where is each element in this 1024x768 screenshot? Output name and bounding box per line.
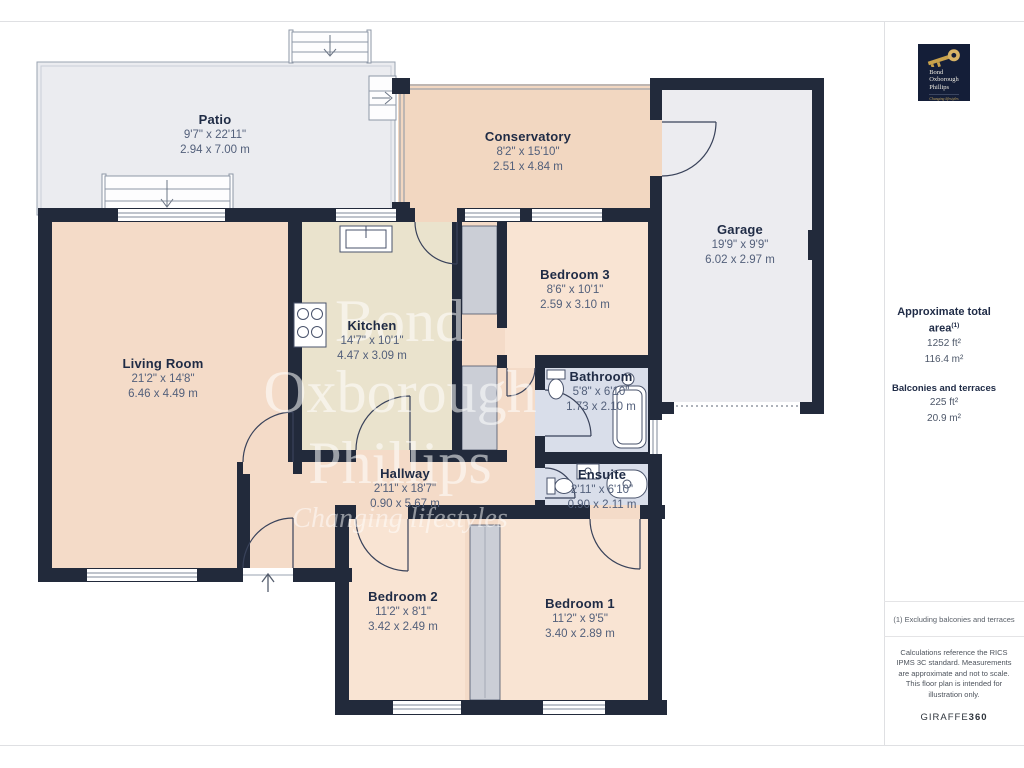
logo-tagline: Changing lifestyles bbox=[929, 94, 958, 101]
footnote-text: (1) Excluding balconies and terraces bbox=[893, 615, 1014, 624]
total-area-heading: Approximate total area(1) bbox=[884, 305, 1004, 336]
bedroom1-floor bbox=[498, 515, 653, 705]
kitchen-hob bbox=[294, 303, 326, 347]
key-icon bbox=[922, 48, 966, 67]
sidebar: Bond Oxborough Phillips Changing lifesty… bbox=[884, 21, 1024, 745]
agency-logo: Bond Oxborough Phillips Changing lifesty… bbox=[918, 44, 970, 101]
ensuite-toilet bbox=[547, 478, 555, 494]
area-summary: Approximate total area(1) 1252 ft² 116.4… bbox=[884, 305, 1004, 427]
balconies-heading: Balconies and terraces bbox=[884, 382, 1004, 395]
disclaimer-text: Calculations reference the RICS IPMS 3C … bbox=[892, 648, 1016, 700]
total-area-m: 116.4 m² bbox=[884, 352, 1004, 368]
bathtub bbox=[613, 386, 646, 448]
conservatory bbox=[392, 78, 652, 218]
balconies-m: 20.9 m² bbox=[884, 411, 1004, 427]
bedroom2-floor bbox=[345, 515, 465, 705]
footnote-marker: (1) bbox=[951, 322, 959, 329]
floorplan-svg bbox=[0, 0, 884, 768]
bedroom3-floor bbox=[505, 220, 650, 360]
bathroom-toilet bbox=[547, 370, 565, 379]
logo-wordmark: Bond Oxborough Phillips bbox=[929, 69, 959, 92]
total-area-ft: 1252 ft² bbox=[884, 336, 1004, 352]
giraffe360-brand: GIRAFFE360 bbox=[884, 712, 1024, 723]
footnote-section: (1) Excluding balconies and terraces bbox=[884, 601, 1024, 637]
balconies-ft: 225 ft² bbox=[884, 395, 1004, 411]
patio-stairs-side bbox=[369, 76, 396, 120]
bathroom-sink bbox=[622, 373, 634, 385]
patio-stairs-top bbox=[289, 30, 371, 63]
ensuite-sink bbox=[577, 464, 599, 479]
floorplan-page: Bond Oxborough Phillips Changing lifesty… bbox=[0, 0, 1024, 768]
floorplan-canvas: Bond Oxborough Phillips Changing lifesty… bbox=[0, 0, 884, 768]
ensuite-shower bbox=[607, 470, 647, 498]
garage bbox=[650, 78, 824, 414]
